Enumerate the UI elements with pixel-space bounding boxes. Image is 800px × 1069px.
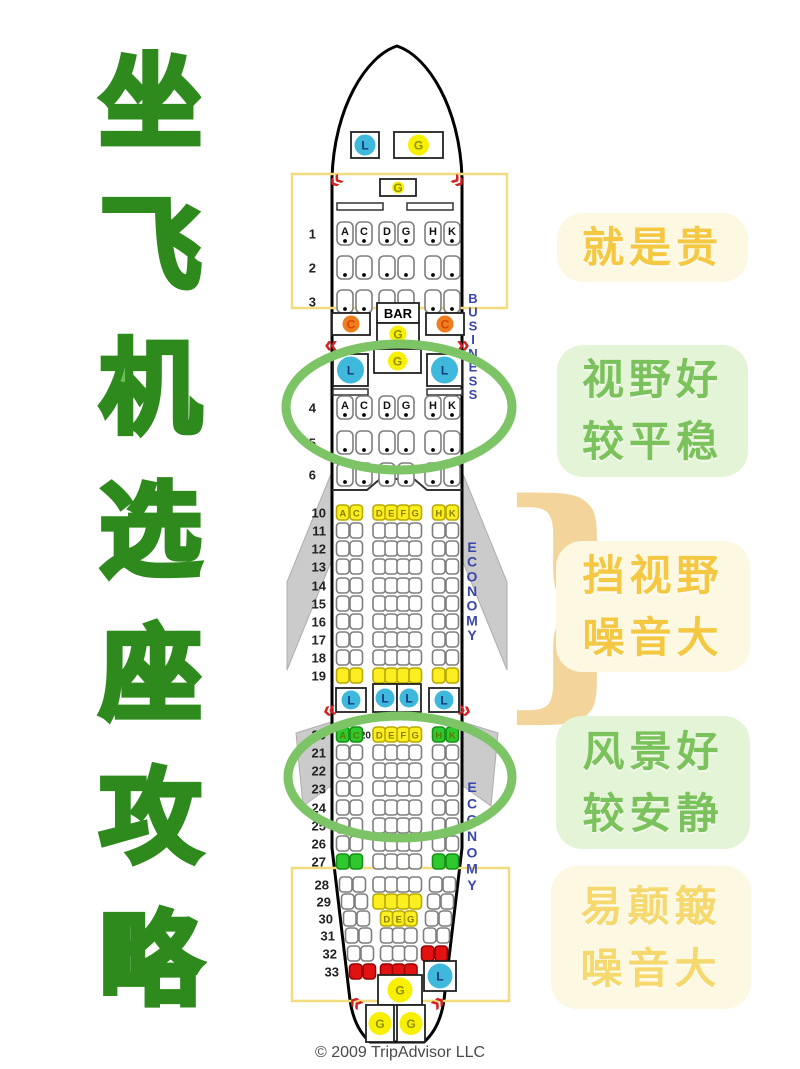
seat — [446, 596, 459, 611]
seat — [446, 800, 459, 815]
seat — [373, 632, 386, 647]
closet-letter: C — [441, 318, 450, 332]
lavatory-letter: L — [347, 694, 354, 708]
seat — [433, 763, 446, 778]
seat — [344, 911, 357, 926]
seat — [350, 541, 363, 556]
seat — [337, 523, 350, 538]
seat-letter: D — [376, 509, 383, 520]
seat — [433, 559, 446, 574]
section-label: S — [469, 387, 478, 402]
row-number: 2 — [309, 261, 316, 276]
row-number: 1 — [309, 227, 316, 242]
seat-letter: K — [448, 400, 456, 412]
seat-letter: D — [383, 226, 391, 238]
label-line: 噪音大 — [580, 938, 721, 1000]
seat — [409, 894, 422, 909]
seat — [424, 928, 437, 943]
seat — [446, 763, 459, 778]
seat — [337, 781, 350, 796]
seat — [397, 818, 410, 833]
section-label: C — [467, 554, 477, 570]
row-number: 13 — [312, 560, 326, 575]
label-line: 视野好 — [582, 349, 723, 411]
seat — [409, 523, 422, 538]
seat — [433, 650, 446, 665]
seat-dot — [362, 239, 366, 243]
row-number: 33 — [325, 965, 339, 980]
seat — [446, 559, 459, 574]
seat-dot — [404, 480, 408, 484]
seat — [337, 541, 350, 556]
galley-letter: G — [414, 139, 423, 153]
section-label: Y — [467, 877, 477, 893]
seat — [337, 632, 350, 647]
seat — [385, 559, 398, 574]
label-line: 较安静 — [582, 783, 723, 845]
seat — [337, 596, 350, 611]
row-number: 28 — [315, 878, 329, 893]
galley-letter: G — [393, 355, 402, 369]
seat — [353, 877, 366, 892]
lavatory-letter: L — [440, 694, 447, 708]
row-number: 26 — [312, 837, 326, 852]
seat — [409, 781, 422, 796]
stowage-bar — [407, 203, 453, 210]
seat — [337, 559, 350, 574]
section-label: O — [467, 568, 478, 584]
seat — [381, 928, 394, 943]
label-expensive: 就是贵 — [557, 213, 748, 282]
galley-letter: G — [375, 1017, 384, 1031]
seat — [397, 781, 410, 796]
seat — [373, 894, 386, 909]
seat-dot — [450, 273, 454, 277]
seat — [433, 854, 446, 869]
seat — [385, 781, 398, 796]
seat-dot — [343, 273, 347, 277]
seat — [348, 946, 361, 961]
label-line: 挡视野 — [582, 545, 723, 607]
label-blocked-view-noisy: 挡视野 噪音大 — [556, 541, 750, 672]
row-number: 10 — [312, 506, 326, 521]
seat-dot — [362, 307, 366, 311]
seat — [385, 668, 398, 683]
seat-letter: A — [339, 509, 346, 520]
seat — [373, 541, 386, 556]
seat — [433, 632, 446, 647]
seat — [385, 854, 398, 869]
seat — [397, 877, 410, 892]
section-label: N — [467, 828, 477, 844]
seat — [337, 668, 350, 683]
seat-letter: E — [388, 509, 394, 520]
seat — [433, 541, 446, 556]
seat — [439, 911, 452, 926]
seat — [397, 614, 410, 629]
label-line: 就是贵 — [582, 217, 723, 279]
seat-letter: A — [341, 400, 349, 412]
label-line: 噪音大 — [582, 607, 723, 669]
seat — [381, 946, 394, 961]
seat — [409, 763, 422, 778]
seat — [441, 894, 454, 909]
seat — [337, 745, 350, 760]
seat-letter: K — [449, 509, 456, 520]
seat — [373, 800, 386, 815]
row-number: 16 — [312, 615, 326, 630]
seat-letter: H — [429, 226, 437, 238]
seat-letter: E — [396, 915, 402, 926]
seat — [359, 928, 372, 943]
seat — [337, 763, 350, 778]
seat — [409, 596, 422, 611]
seat-dot — [404, 273, 408, 277]
seat — [385, 877, 398, 892]
seat — [409, 745, 422, 760]
seat — [350, 632, 363, 647]
seat — [397, 578, 410, 593]
row-number: 4 — [309, 401, 317, 416]
section-label: O — [467, 844, 478, 860]
stowage-bar — [333, 389, 368, 395]
seat — [428, 894, 441, 909]
stowage-bar — [337, 203, 383, 210]
seat-letter: C — [353, 509, 360, 520]
seat — [409, 877, 422, 892]
section-label: M — [466, 861, 478, 877]
label-good-scenery-quiet: 风景好 较安静 — [556, 716, 750, 849]
seat — [357, 911, 370, 926]
seat-dot — [431, 307, 435, 311]
bar-label: BAR — [384, 306, 413, 321]
seat — [437, 928, 450, 943]
seat-dot — [450, 448, 454, 452]
seat — [385, 578, 398, 593]
seat — [409, 632, 422, 647]
seat-letter: C — [360, 400, 368, 412]
seat-letter: A — [341, 226, 349, 238]
seat — [393, 928, 406, 943]
copyright-text: © 2009 TripAdvisor LLC — [290, 1044, 510, 1062]
seat-dot — [362, 480, 366, 484]
seat — [409, 578, 422, 593]
seat-dot — [450, 480, 454, 484]
seat — [373, 668, 386, 683]
seat-dot — [343, 307, 347, 311]
seat — [373, 763, 386, 778]
seat-letter: E — [388, 731, 394, 742]
seat-dot — [343, 448, 347, 452]
section-label: E — [467, 539, 476, 555]
seat-dot — [431, 448, 435, 452]
lavatory-letter: L — [381, 692, 388, 706]
seat — [373, 781, 386, 796]
seat — [397, 632, 410, 647]
seat-letter: G — [412, 731, 419, 742]
seat — [337, 578, 350, 593]
seat — [397, 523, 410, 538]
row-number: 27 — [312, 855, 326, 870]
seat-letter: C — [360, 226, 368, 238]
seat — [433, 668, 446, 683]
seat-dot — [431, 413, 435, 417]
seat — [409, 541, 422, 556]
seat — [435, 946, 448, 961]
seat — [350, 650, 363, 665]
row-number: 3 — [309, 295, 316, 310]
section-label: Y — [467, 627, 477, 643]
row-number: 31 — [321, 929, 335, 944]
seat — [385, 541, 398, 556]
row-number: 6 — [309, 468, 316, 483]
seat — [397, 745, 410, 760]
seat — [393, 946, 406, 961]
seat — [397, 541, 410, 556]
seat — [373, 650, 386, 665]
seat — [409, 854, 422, 869]
label-line: 较平稳 — [582, 411, 723, 473]
seat — [373, 877, 386, 892]
row-number: 11 — [312, 524, 326, 539]
seat — [405, 928, 418, 943]
seat — [385, 894, 398, 909]
label-bumpy-noisy: 易颠簸 噪音大 — [551, 866, 751, 1009]
seat — [385, 650, 398, 665]
lavatory-letter: L — [361, 139, 368, 153]
seat-dot — [450, 239, 454, 243]
seat — [397, 854, 410, 869]
galley-letter: G — [395, 984, 404, 998]
row-number: 23 — [312, 782, 326, 797]
seat — [433, 614, 446, 629]
row-number: 15 — [312, 597, 326, 612]
seat-letter: G — [402, 226, 411, 238]
seat — [337, 854, 350, 869]
seat — [397, 800, 410, 815]
seat-letter: K — [449, 731, 456, 742]
seat — [397, 668, 410, 683]
seat — [433, 745, 446, 760]
seat-dot — [385, 239, 389, 243]
seat — [342, 894, 355, 909]
seat-dot — [385, 480, 389, 484]
seat — [422, 946, 435, 961]
seat — [350, 800, 363, 815]
seat — [433, 800, 446, 815]
seat — [373, 745, 386, 760]
seat — [355, 894, 368, 909]
seat-letter: D — [383, 915, 390, 926]
seat-letter: F — [400, 731, 406, 742]
closet-letter: C — [347, 318, 356, 332]
seat — [337, 650, 350, 665]
seat-dot — [404, 413, 408, 417]
section-label: M — [466, 612, 478, 628]
seat-dot — [450, 307, 454, 311]
seat — [397, 559, 410, 574]
seat — [409, 614, 422, 629]
seat — [433, 596, 446, 611]
seat — [446, 836, 459, 851]
label-line: 易颠簸 — [580, 876, 721, 938]
seat-dot — [450, 413, 454, 417]
seat-dot — [431, 480, 435, 484]
seat-letter: H — [435, 509, 442, 520]
seat-letter: D — [383, 400, 391, 412]
seat-letter: F — [400, 509, 406, 520]
seat — [446, 854, 459, 869]
seat — [409, 668, 422, 683]
seat — [397, 763, 410, 778]
seat — [397, 894, 410, 909]
row-number: 18 — [312, 651, 326, 666]
seat — [433, 578, 446, 593]
seat — [443, 877, 456, 892]
row-number: 17 — [312, 633, 326, 648]
seat — [373, 854, 386, 869]
seat-dot — [385, 413, 389, 417]
galley-letter: G — [393, 181, 402, 195]
seat-dot — [385, 448, 389, 452]
seat-dot — [343, 239, 347, 243]
seat — [446, 650, 459, 665]
seat — [446, 523, 459, 538]
lavatory-letter: L — [441, 364, 448, 378]
seat — [350, 668, 363, 683]
seat-dot — [362, 413, 366, 417]
seat-dot — [343, 413, 347, 417]
lavatory-letter: L — [405, 692, 412, 706]
row-number: 22 — [312, 764, 326, 779]
seat — [385, 632, 398, 647]
seat-letter: G — [407, 915, 414, 926]
seat — [350, 614, 363, 629]
row-number: 14 — [312, 579, 327, 594]
section-label: N — [467, 583, 477, 599]
seat-letter: H — [435, 731, 442, 742]
seat — [446, 614, 459, 629]
section-label: E — [467, 779, 476, 795]
seat — [363, 964, 376, 979]
seat — [385, 745, 398, 760]
seat-letter: K — [448, 226, 456, 238]
seat — [373, 559, 386, 574]
seat — [385, 596, 398, 611]
seat — [350, 745, 363, 760]
seat — [409, 650, 422, 665]
seat — [433, 523, 446, 538]
seat — [446, 578, 459, 593]
seat — [409, 559, 422, 574]
seat — [337, 800, 350, 815]
seat — [350, 559, 363, 574]
seat — [446, 541, 459, 556]
row-number: 30 — [319, 912, 333, 927]
section-label: O — [467, 598, 478, 614]
seat — [350, 596, 363, 611]
seat — [350, 781, 363, 796]
seat — [385, 818, 398, 833]
row-number: 29 — [317, 895, 331, 910]
label-good-view-stable: 视野好 较平稳 — [557, 345, 748, 477]
galley-letter: G — [406, 1017, 415, 1031]
row-number: 32 — [323, 947, 337, 962]
seat-letter: G — [402, 400, 411, 412]
seat-letter: D — [376, 731, 383, 742]
seat-dot — [362, 448, 366, 452]
seat — [350, 523, 363, 538]
seat — [350, 964, 363, 979]
seat-dot — [404, 239, 408, 243]
seat — [385, 614, 398, 629]
seat-letter: C — [353, 731, 360, 742]
seat — [373, 614, 386, 629]
galley-letter: G — [393, 328, 402, 342]
seat-dot — [431, 239, 435, 243]
seat — [350, 854, 363, 869]
seat — [409, 800, 422, 815]
seat — [426, 911, 439, 926]
seat-letter: A — [339, 731, 346, 742]
lavatory-letter: L — [436, 970, 443, 984]
seat-dot — [362, 273, 366, 277]
section-label: C — [467, 795, 477, 811]
seat — [373, 523, 386, 538]
seat — [446, 668, 459, 683]
stowage-bar — [427, 389, 462, 395]
seat — [397, 596, 410, 611]
seat — [405, 946, 418, 961]
seat — [350, 578, 363, 593]
label-line: 风景好 — [582, 721, 723, 783]
seat — [385, 800, 398, 815]
seat-letter: G — [412, 509, 419, 520]
row-number: 21 — [312, 746, 326, 761]
seat-letter: H — [429, 400, 437, 412]
seat — [409, 818, 422, 833]
seat — [446, 745, 459, 760]
seat — [446, 781, 459, 796]
seat — [373, 596, 386, 611]
row-number: 12 — [312, 542, 326, 557]
seat — [446, 632, 459, 647]
row-number: 19 — [312, 669, 326, 684]
seat — [346, 928, 359, 943]
seat — [361, 946, 374, 961]
seat — [337, 614, 350, 629]
seat-dot — [431, 273, 435, 277]
seat — [373, 578, 386, 593]
seat — [350, 763, 363, 778]
seat — [373, 818, 386, 833]
seat — [385, 763, 398, 778]
lavatory-letter: L — [347, 364, 354, 378]
seat-dot — [385, 273, 389, 277]
seat-dot — [343, 480, 347, 484]
seat — [397, 650, 410, 665]
seat — [433, 781, 446, 796]
seat — [340, 877, 353, 892]
seat — [430, 877, 443, 892]
seat — [385, 523, 398, 538]
seat-dot — [404, 448, 408, 452]
seat — [337, 836, 350, 851]
